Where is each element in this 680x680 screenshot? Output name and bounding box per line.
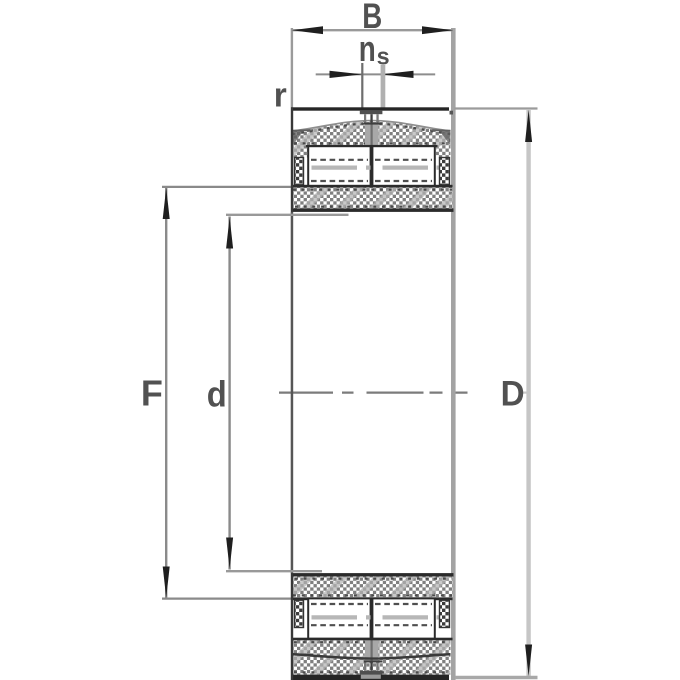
svg-text:d: d: [207, 373, 227, 414]
svg-text:r: r: [274, 76, 287, 114]
svg-text:F: F: [141, 373, 163, 414]
svg-text:s: s: [377, 44, 390, 71]
svg-text:n: n: [359, 28, 376, 69]
svg-text:D: D: [501, 374, 525, 413]
